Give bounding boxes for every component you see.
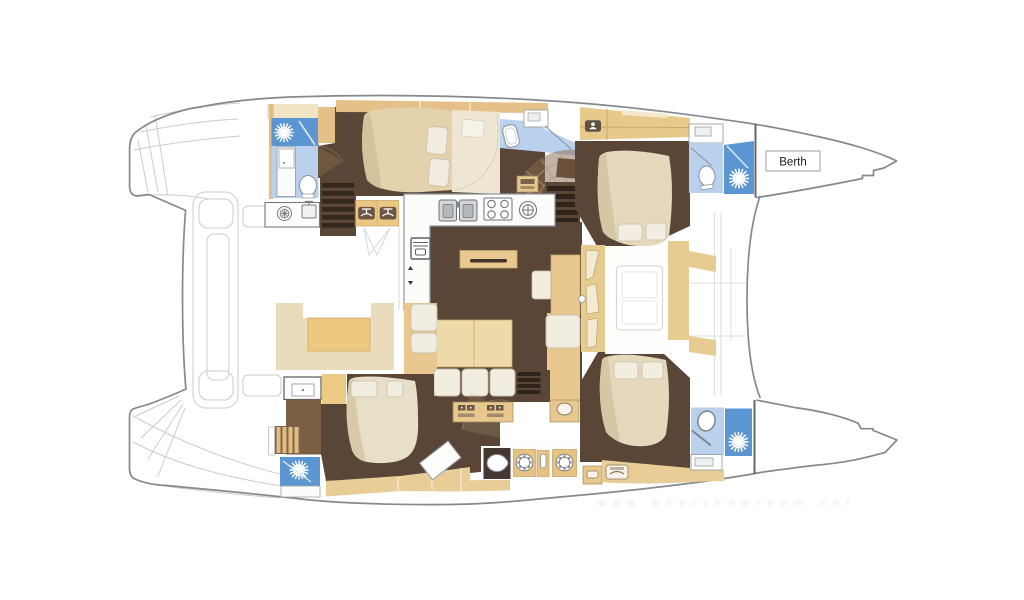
svg-text:Berth: Berth — [779, 157, 807, 169]
svg-text:w w w . b o a t s h o w r o o: w w w . b o a t s h o w r o o m . n e t — [597, 497, 851, 509]
